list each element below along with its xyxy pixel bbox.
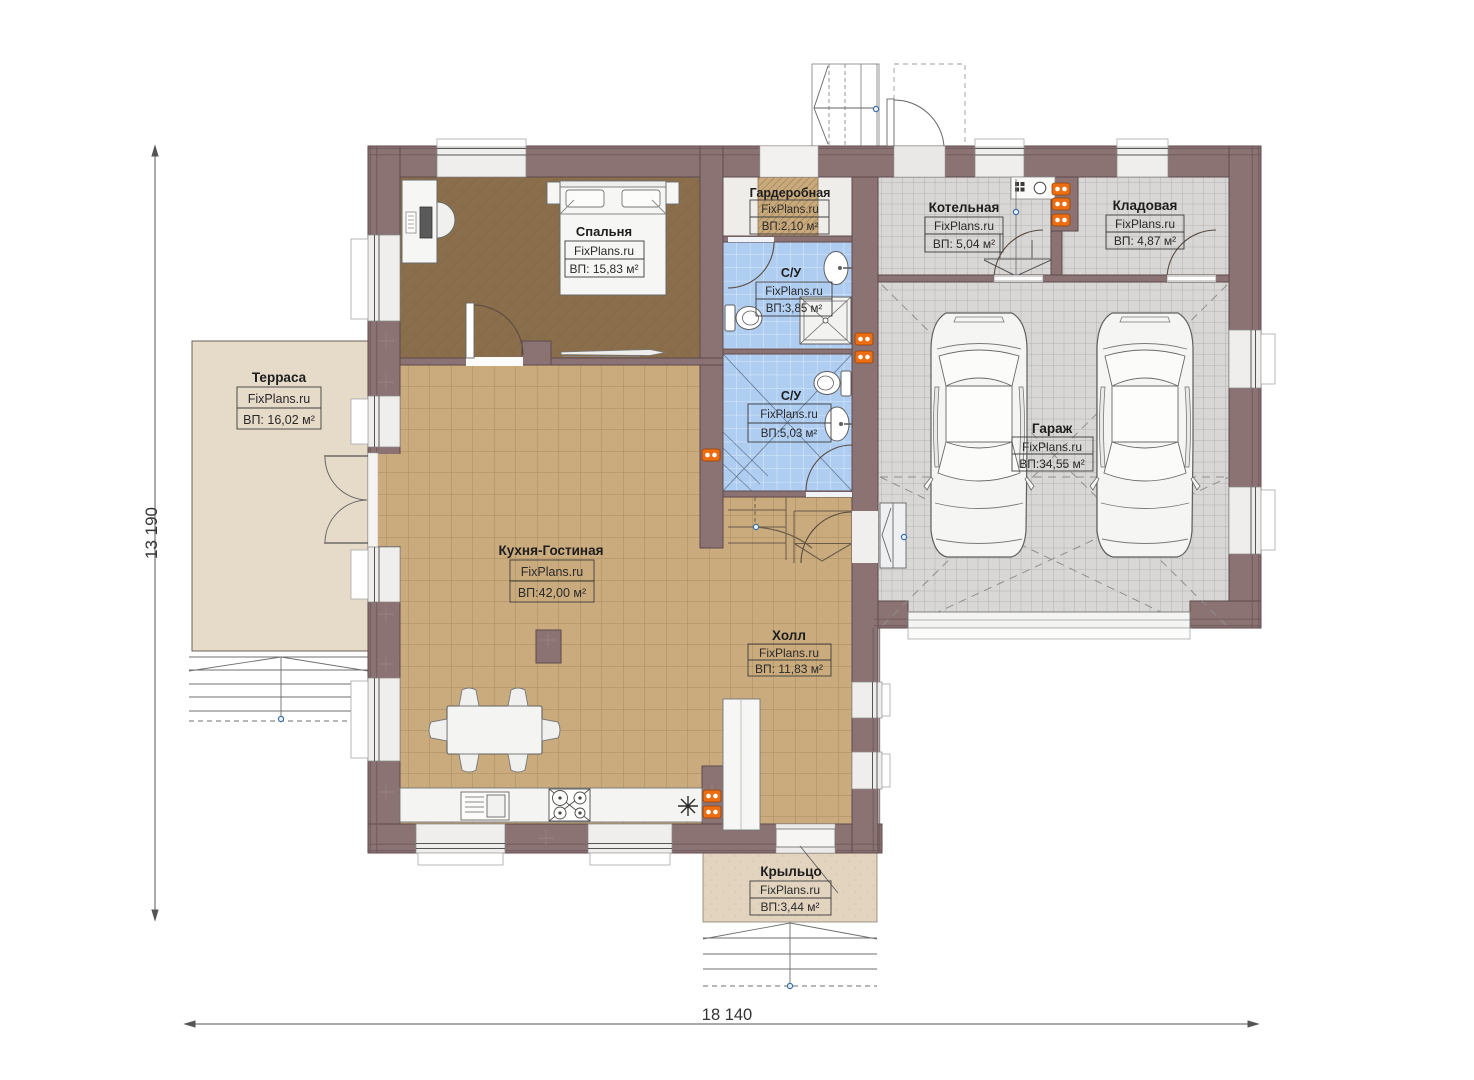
svg-text:ВП:42,00 м²: ВП:42,00 м² [518,586,586,600]
svg-text:ВП: 16,02 м²: ВП: 16,02 м² [243,413,315,427]
svg-text:ВП: 5,04 м²: ВП: 5,04 м² [933,237,995,251]
svg-text:FixPlans.ru: FixPlans.ru [934,219,994,233]
svg-text:ВП:5,03 м²: ВП:5,03 м² [761,428,818,440]
svg-text:Крыльцо: Крыльцо [760,864,821,879]
svg-text:FixPlans.ru: FixPlans.ru [1022,440,1082,454]
svg-text:Холл: Холл [772,628,806,643]
svg-text:FixPlans.ru: FixPlans.ru [760,409,818,421]
svg-text:FixPlans.ru: FixPlans.ru [574,244,634,258]
svg-text:ВП: 15,83 м²: ВП: 15,83 м² [570,262,639,276]
svg-text:18 140: 18 140 [702,1006,752,1024]
svg-text:Спальня: Спальня [576,224,632,239]
svg-text:С/У: С/У [781,389,802,403]
svg-text:Терраса: Терраса [252,370,307,385]
svg-text:FixPlans.ru: FixPlans.ru [765,286,823,298]
svg-text:Гараж: Гараж [1032,421,1073,436]
svg-text:ВП:3,44 м²: ВП:3,44 м² [761,900,820,914]
svg-text:FixPlans.ru: FixPlans.ru [760,883,820,897]
svg-text:Гардеробная: Гардеробная [750,186,831,200]
svg-text:ВП: 11,83 м²: ВП: 11,83 м² [755,662,823,676]
svg-text:FixPlans.ru: FixPlans.ru [759,646,819,660]
svg-text:Кладовая: Кладовая [1113,198,1178,213]
svg-text:13 190: 13 190 [142,507,161,559]
svg-text:С/У: С/У [781,266,802,280]
svg-text:Котельная: Котельная [929,200,1000,215]
svg-text:ВП:34,55 м²: ВП:34,55 м² [1019,457,1085,471]
svg-text:Кухня-Гостиная: Кухня-Гостиная [499,543,604,558]
svg-text:ВП:2,10 м²: ВП:2,10 м² [762,221,819,233]
svg-text:FixPlans.ru: FixPlans.ru [521,565,584,579]
svg-text:ВП: 4,87 м²: ВП: 4,87 м² [1114,234,1176,248]
svg-text:ВП:3,85 м²: ВП:3,85 м² [766,303,823,315]
svg-text:FixPlans.ru: FixPlans.ru [761,204,819,216]
svg-text:FixPlans.ru: FixPlans.ru [1115,217,1175,231]
svg-text:FixPlans.ru: FixPlans.ru [248,392,311,406]
